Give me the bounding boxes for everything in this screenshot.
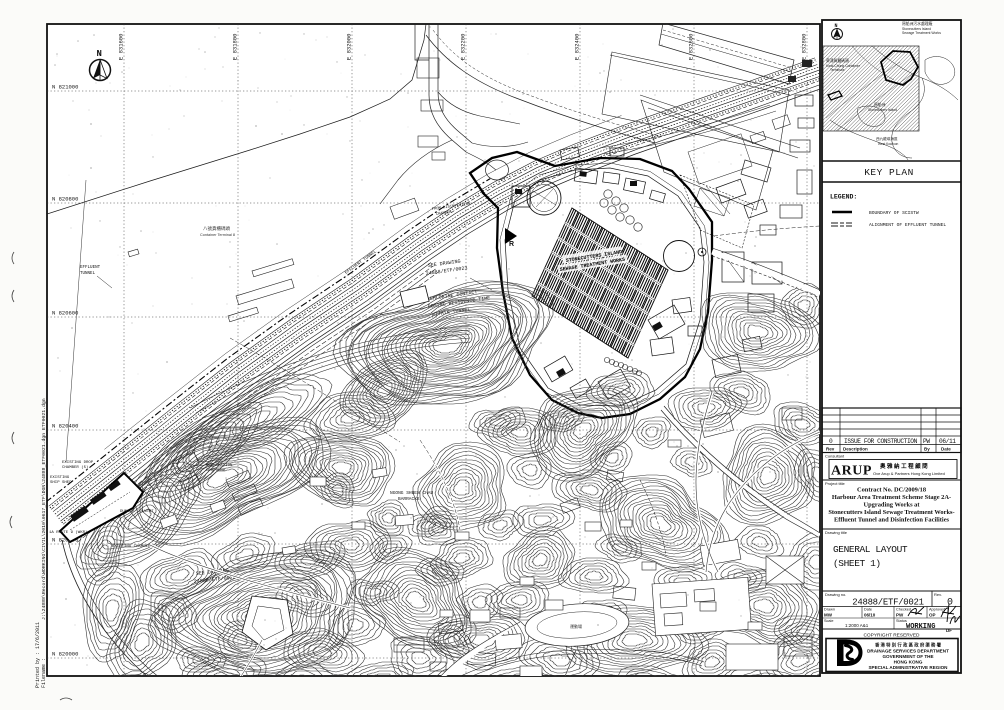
svg-text:DUNLOP CULVERT: DUNLOP CULVERT: [120, 510, 154, 514]
svg-text:RECLAMATION: RECLAMATION: [206, 464, 233, 468]
svg-text:E 832400: E 832400: [574, 34, 581, 60]
svg-text:Harbour Area Treatment Scheme: Harbour Area Treatment Scheme Stage 2A-: [832, 494, 951, 501]
svg-text:奧 雅 納 工 程 顧 問: 奧 雅 納 工 程 顧 問: [880, 462, 928, 470]
svg-text:24888/ETF/0021: 24888/ETF/0021: [852, 598, 923, 608]
svg-text:昂船洲: 昂船洲: [874, 102, 886, 107]
svg-text:MW: MW: [824, 613, 833, 618]
svg-text:Effluent Tunnel and Disinfecti: Effluent Tunnel and Disinfection Facilit…: [834, 517, 950, 524]
svg-text:TUNNEL: TUNNEL: [80, 272, 96, 276]
svg-text:Ove Arup & Partners Hong Kong: Ove Arup & Partners Hong Kong Limited: [873, 471, 945, 476]
svg-text:Upgrading Works at: Upgrading Works at: [864, 502, 921, 509]
svg-text:West Kowloon: West Kowloon: [878, 142, 899, 146]
svg-text:KEY PLAN: KEY PLAN: [864, 167, 914, 178]
svg-text:Sewage Treatment Works: Sewage Treatment Works: [902, 31, 941, 35]
svg-text:PW: PW: [896, 613, 904, 618]
svg-text:Stonecutters Island: Stonecutters Island: [868, 108, 897, 112]
svg-text:1A ROUTE 9 (WKR): 1A ROUTE 9 (WKR): [49, 530, 87, 535]
svg-text:GENERAL LAYOUT: GENERAL LAYOUT: [833, 544, 908, 555]
svg-text:06/10: 06/10: [864, 613, 876, 618]
svg-text:ARUP: ARUP: [831, 464, 872, 479]
svg-text:N 821000: N 821000: [52, 84, 78, 91]
svg-text:SHIP SHED: SHIP SHED: [50, 481, 72, 485]
svg-text:N: N: [835, 23, 838, 29]
svg-text:八號貨櫃碼頭: 八號貨櫃碼頭: [203, 225, 230, 232]
svg-text:Date: Date: [941, 447, 951, 452]
svg-text:Drawing title: Drawing title: [825, 530, 848, 535]
svg-text:N 820000: N 820000: [52, 651, 78, 658]
svg-text:Project title: Project title: [825, 481, 846, 486]
svg-text:N 820800: N 820800: [52, 196, 78, 203]
svg-text:香 港 特 別 行 政 區 政 府 渠 務 署: 香 港 特 別 行 政 區 政 府 渠 務 署: [874, 642, 942, 649]
svg-text:Stonecutters Island Sewage Tre: Stonecutters Island Sewage Treatment Wor…: [828, 509, 954, 516]
svg-text:運動場: 運動場: [570, 623, 582, 629]
svg-text:Filename :: Filename :: [41, 658, 47, 688]
svg-text:Drawing no.: Drawing no.: [825, 592, 846, 597]
svg-text:PW: PW: [923, 438, 930, 445]
svg-text:Rev.: Rev.: [934, 592, 942, 597]
svg-text:EXISTING: EXISTING: [50, 476, 70, 480]
svg-text:HONG KONG: HONG KONG: [894, 660, 923, 665]
svg-text:葵涌貨櫃碼頭: 葵涌貨櫃碼頭: [826, 58, 849, 63]
svg-text:DRAINAGE SERVICES DEPARTMENT: DRAINAGE SERVICES DEPARTMENT: [867, 649, 949, 654]
svg-text:Terminals: Terminals: [830, 68, 845, 72]
svg-text:OP: OP: [929, 613, 936, 618]
svg-text:Container Terminal 8: Container Terminal 8: [200, 233, 235, 237]
svg-text:BOUNDARY OF SCISTW: BOUNDARY OF SCISTW: [869, 210, 919, 216]
svg-text:1:2000 A&1: 1:2000 A&1: [845, 623, 869, 628]
svg-text:E 831800: E 831800: [232, 34, 239, 60]
svg-text:NGONG SHUEN CHAU: NGONG SHUEN CHAU: [390, 490, 434, 496]
svg-text:CHAMBER (5): CHAMBER (5): [62, 465, 88, 470]
svg-text:GOVERNMENT OF THE: GOVERNMENT OF THE: [882, 654, 933, 659]
svg-text:06/11: 06/11: [939, 438, 956, 445]
svg-text:Date: Date: [864, 608, 872, 612]
svg-text:(SHEET 1): (SHEET 1): [833, 558, 881, 569]
svg-text:EXISTING DROP: EXISTING DROP: [62, 461, 94, 465]
svg-text:昂船洲污水處理廠: 昂船洲污水處理廠: [902, 21, 933, 26]
svg-text:WORKING: WORKING: [906, 623, 935, 631]
svg-text:N 820400: N 820400: [52, 423, 78, 430]
svg-text:COPYRIGHT RESERVED: COPYRIGHT RESERVED: [863, 633, 920, 639]
svg-text:Scale: Scale: [824, 619, 834, 623]
svg-text:0: 0: [829, 438, 833, 445]
svg-text:E 832200: E 832200: [460, 34, 467, 60]
svg-text:Rev: Rev: [826, 447, 835, 452]
svg-text:Description: Description: [843, 447, 868, 452]
svg-text:ALIGNMENT OF EFFLUENT TUNNEL: ALIGNMENT OF EFFLUENT TUNNEL: [869, 222, 946, 228]
svg-text:Consultant: Consultant: [825, 454, 845, 459]
svg-text:Approved: Approved: [929, 608, 945, 612]
svg-text:J:\24888\Record\WORKING\CIVIL\: J:\24888\Record\WORKING\CIVIL\2010\0617_…: [41, 398, 47, 620]
svg-text:N: N: [97, 49, 102, 59]
svg-text:COMPOUND: COMPOUND: [206, 469, 226, 473]
svg-text:SPECIAL ADMINISTRATIVE REGION: SPECIAL ADMINISTRATIVE REGION: [868, 665, 948, 670]
svg-text:E 831600: E 831600: [118, 34, 125, 60]
svg-text:BARRACKS: BARRACKS: [398, 496, 420, 502]
svg-text:E 832000: E 832000: [346, 34, 353, 60]
svg-text:Checked: Checked: [896, 608, 911, 612]
svg-text:N 820600: N 820600: [52, 310, 78, 317]
svg-text:By: By: [924, 447, 930, 452]
svg-text:Contract No. DC/2009/18: Contract No. DC/2009/18: [857, 487, 926, 494]
svg-text:R: R: [509, 241, 514, 248]
svg-text:西九龍填海區: 西九龍填海區: [876, 136, 898, 141]
svg-text:Drawn: Drawn: [824, 608, 835, 612]
svg-text:ISSUE FOR CONSTRUCTION: ISSUE FOR CONSTRUCTION: [844, 438, 918, 445]
svg-text:EFFLUENT: EFFLUENT: [80, 266, 101, 270]
svg-text:LEGEND:: LEGEND:: [830, 194, 857, 201]
